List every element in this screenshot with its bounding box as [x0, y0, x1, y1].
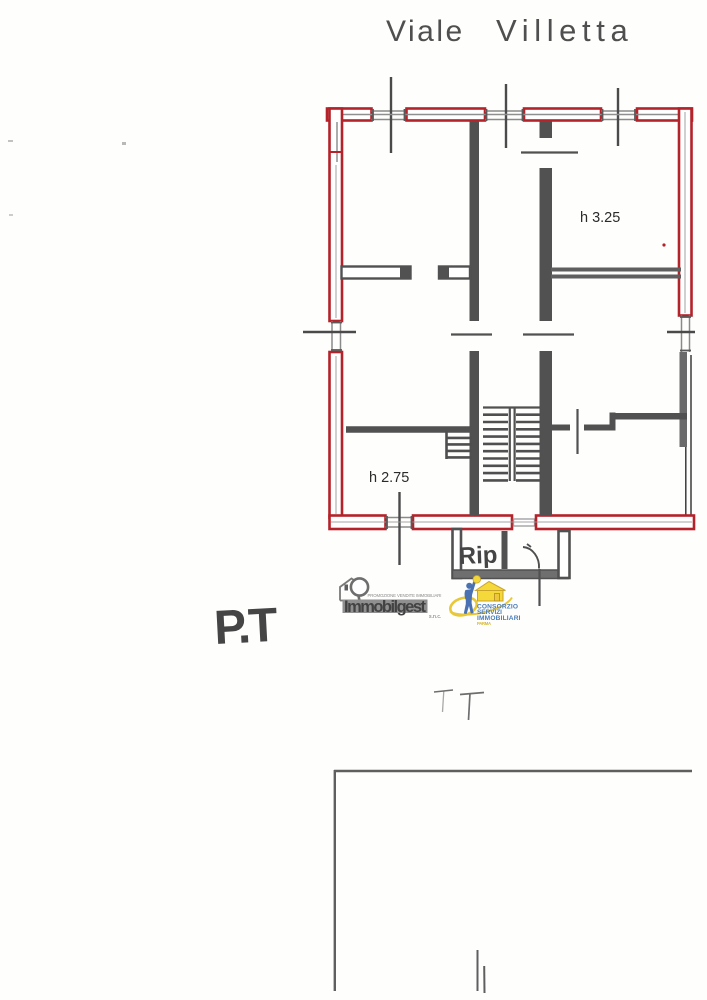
svg-text:Immobilgest: Immobilgest	[344, 598, 427, 616]
svg-text:Rip: Rip	[458, 542, 498, 570]
svg-text:Viale: Viale	[386, 15, 465, 48]
svg-text:h 3.25: h 3.25	[580, 210, 620, 226]
svg-text:PARMA: PARMA	[477, 621, 491, 626]
svg-text:Villetta: Villetta	[496, 13, 633, 48]
svg-text:h 2.75: h 2.75	[369, 470, 409, 486]
svg-text:P.T: P.T	[213, 599, 279, 655]
svg-text:s.n.c.: s.n.c.	[429, 614, 441, 620]
